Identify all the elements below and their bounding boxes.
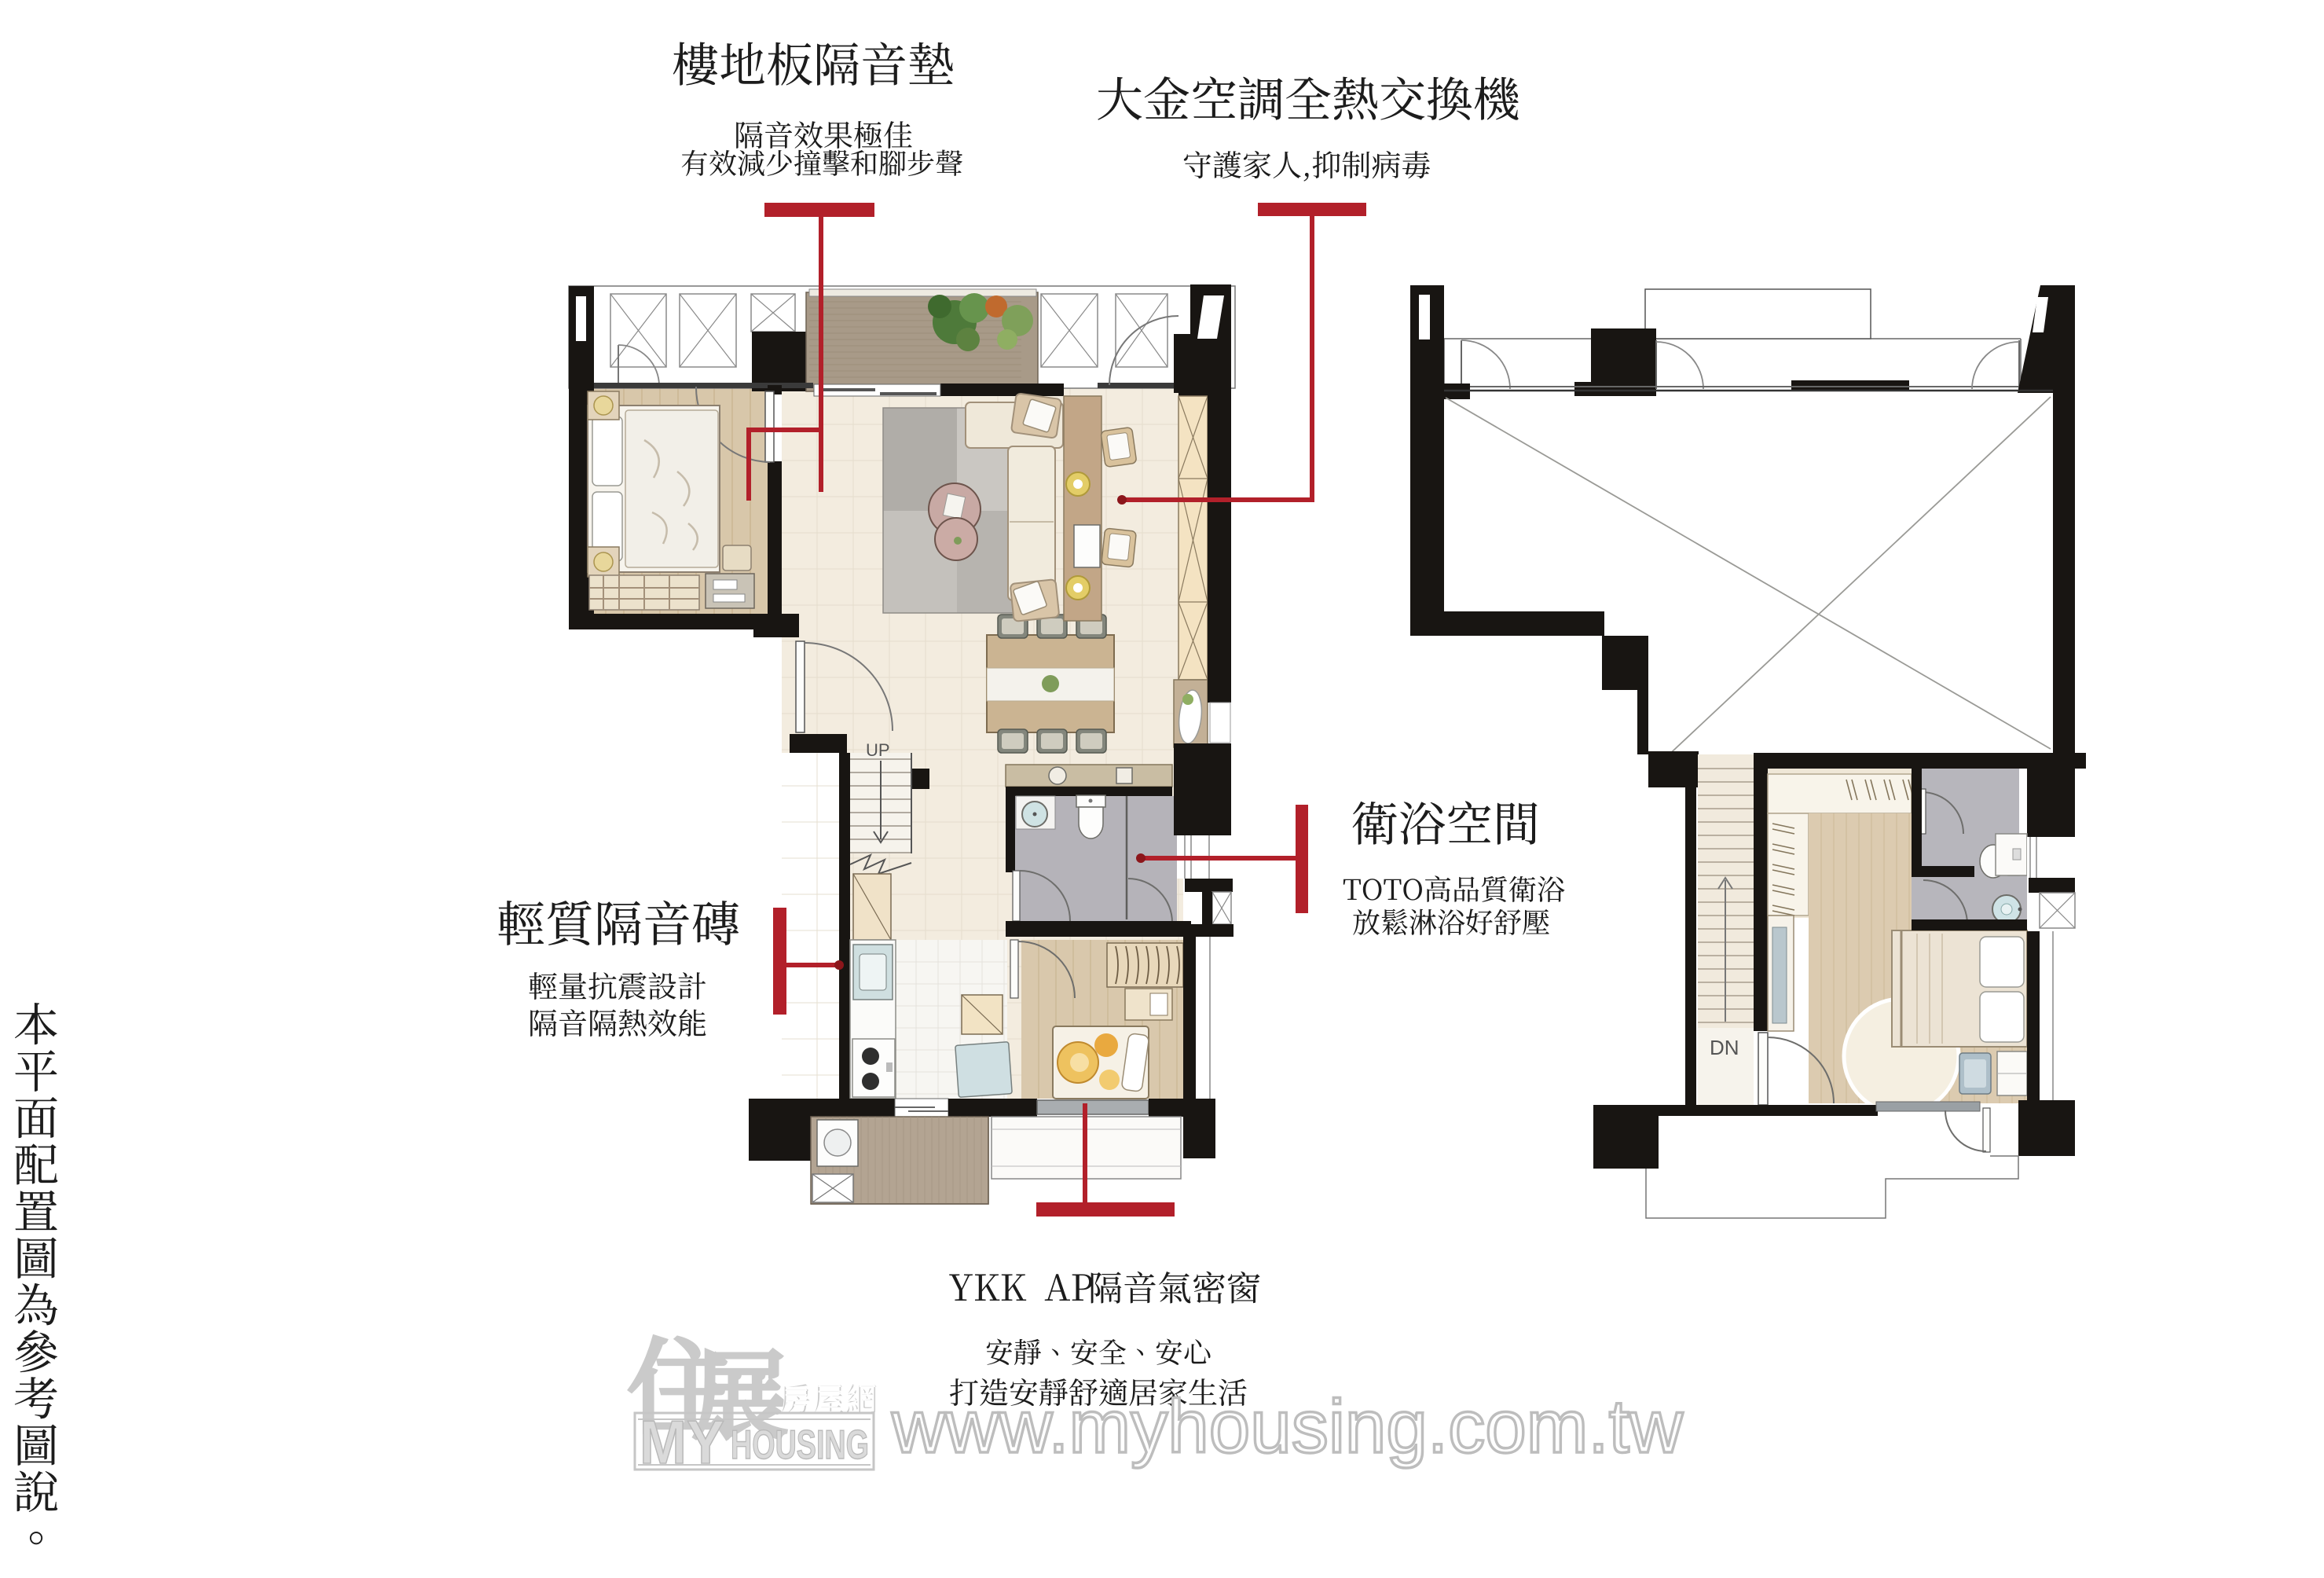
svg-text:DN: DN <box>1710 1036 1739 1059</box>
svg-text:www.myhousing.com.tw: www.myhousing.com.tw <box>891 1385 1684 1469</box>
svg-text:MY: MY <box>640 1407 724 1477</box>
svg-text:HOUSING: HOUSING <box>731 1422 869 1468</box>
svg-text:UP: UP <box>866 740 890 760</box>
